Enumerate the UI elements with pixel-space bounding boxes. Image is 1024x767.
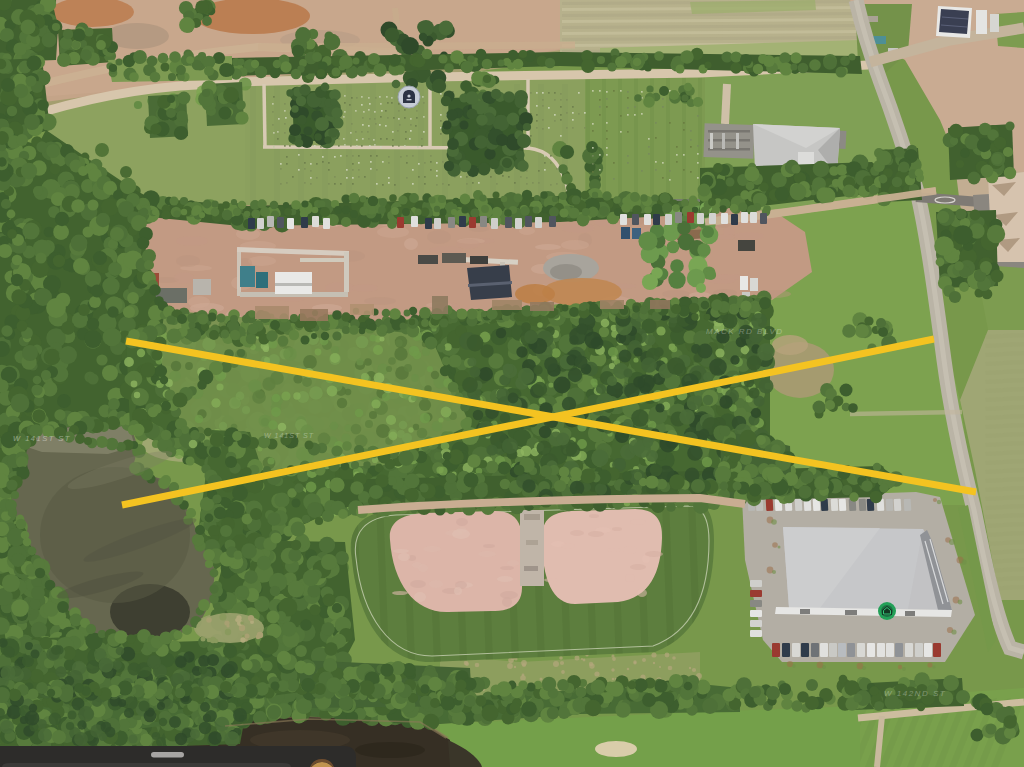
svg-text:W 141ST ST: W 141ST ST bbox=[13, 434, 71, 443]
svg-text:W 141ST ST: W 141ST ST bbox=[264, 432, 314, 439]
svg-text:MACK RD BLVD: MACK RD BLVD bbox=[706, 327, 784, 336]
svg-text:W 142ND ST: W 142ND ST bbox=[884, 689, 946, 698]
